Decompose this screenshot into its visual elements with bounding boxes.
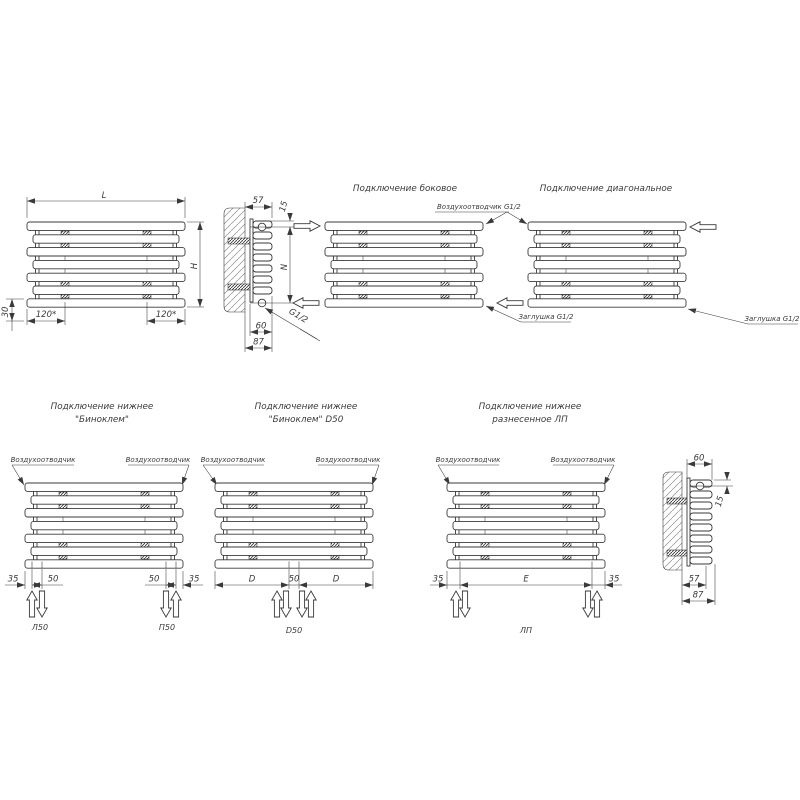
dim-height: H [190,262,200,269]
binocle-d50-title-line1: Подключение нижнее [255,402,358,412]
inflow-arrow [294,221,320,231]
dim-length: L [102,191,107,201]
dim-35-right: 35 [609,575,620,585]
bottom-binocle-diagram: Воздухоотводчик Воздухоотводчик 35 50 50… [5,456,203,632]
supply-arrow [27,591,37,617]
dim-bracket-left: 120* [36,310,56,320]
dim-top-offset-15: 15 [714,495,726,508]
dim-35-left: 35 [8,575,19,585]
dim-depth-87: 87 [693,591,704,601]
inflow-arrow [690,222,716,232]
supply-arrow [451,591,461,617]
dim-depth-57: 57 [253,196,264,206]
return-arrow [161,591,171,617]
dim-e-center: E [523,575,529,585]
dim-35-right: 35 [189,575,200,585]
supply-arrow [592,591,602,617]
diagonal-connection-diagram: Подключение диагональное [497,184,716,308]
plug-g12-right-label: Заглушка G1/2 [745,315,800,323]
variant-tag-lp: ЛП [519,626,532,635]
supply-arrow [171,591,181,617]
air-vent-label: Воздухоотводчик [316,456,382,464]
wall-section [224,208,245,312]
return-arrow [37,591,47,617]
bottom-row-titles: Подключение нижнее "Биноклем" Подключени… [51,402,582,425]
return-arrow [297,591,307,617]
spread-title-line2: разнесенное ЛП [491,415,568,425]
side-connection-title: Подключение боковое [353,184,458,194]
dim-depth-60: 60 [694,454,705,464]
spread-title-line1: Подключение нижнее [479,402,582,412]
dim-depth-57: 57 [689,575,700,585]
diagonal-connection-title: Подключение диагональное [540,184,673,194]
dim-50-left: 50 [48,575,59,585]
dim-depth-87: 87 [253,338,264,348]
bottom-spread-diagram: Воздухоотводчик Воздухоотводчик 35 E 35 … [430,456,622,635]
side-view-top: 57 15 N 60 87 G1/2 [224,196,320,352]
air-vent-label: Воздухоотводчик [11,456,77,464]
dim-d-left: D [249,575,256,585]
dim-d-right: D [333,575,340,585]
variant-tag-d50: D50 [286,626,302,635]
outflow-arrow [293,298,319,308]
air-vent-label: Воздухоотводчик [201,456,267,464]
technical-drawing-page: L H 120* 120* 30 [0,0,800,800]
return-arrow [583,591,593,617]
binocle-d50-title-line2: "Биноклем" D50 [269,415,344,425]
plug-g12-left-label: Заглушка G1/2 [519,313,574,321]
variant-tag-l50: Л50 [31,623,48,632]
return-arrow [281,591,291,617]
dim-50-center: 50 [289,575,300,585]
outflow-arrow [497,298,523,308]
dim-depth-60: 60 [256,322,267,332]
dim-35-left: 35 [433,575,444,585]
bottom-binocle-d50-diagram: Воздухоотводчик Воздухоотводчик D 50 D D… [201,456,382,635]
variant-tag-p50: П50 [159,623,175,632]
dim-bracket-right: 120* [156,310,176,320]
air-vent-label: Воздухоотводчик [551,456,617,464]
binocle-title-line1: Подключение нижнее [51,402,154,412]
return-arrow [460,591,470,617]
supply-arrow [272,591,282,617]
dim-top-offset-15: 15 [278,200,290,213]
dim-axis-span-n: N [280,263,290,270]
dim-bottom-offset: 30 [1,307,11,318]
technical-drawing-canvas: L H 120* 120* 30 [0,0,800,800]
front-view: L H 120* 120* 30 [1,191,204,331]
side-view-bottom: 60 15 57 87 [663,454,733,606]
dim-50-right: 50 [149,575,160,585]
air-vent-g12-label: Воздухоотводчик G1/2 [437,203,521,211]
air-vent-label: Воздухоотводчик [126,456,192,464]
air-vent-label: Воздухоотводчик [436,456,502,464]
binocle-title-line2: "Биноклем" [75,415,129,425]
supply-arrow [306,591,316,617]
